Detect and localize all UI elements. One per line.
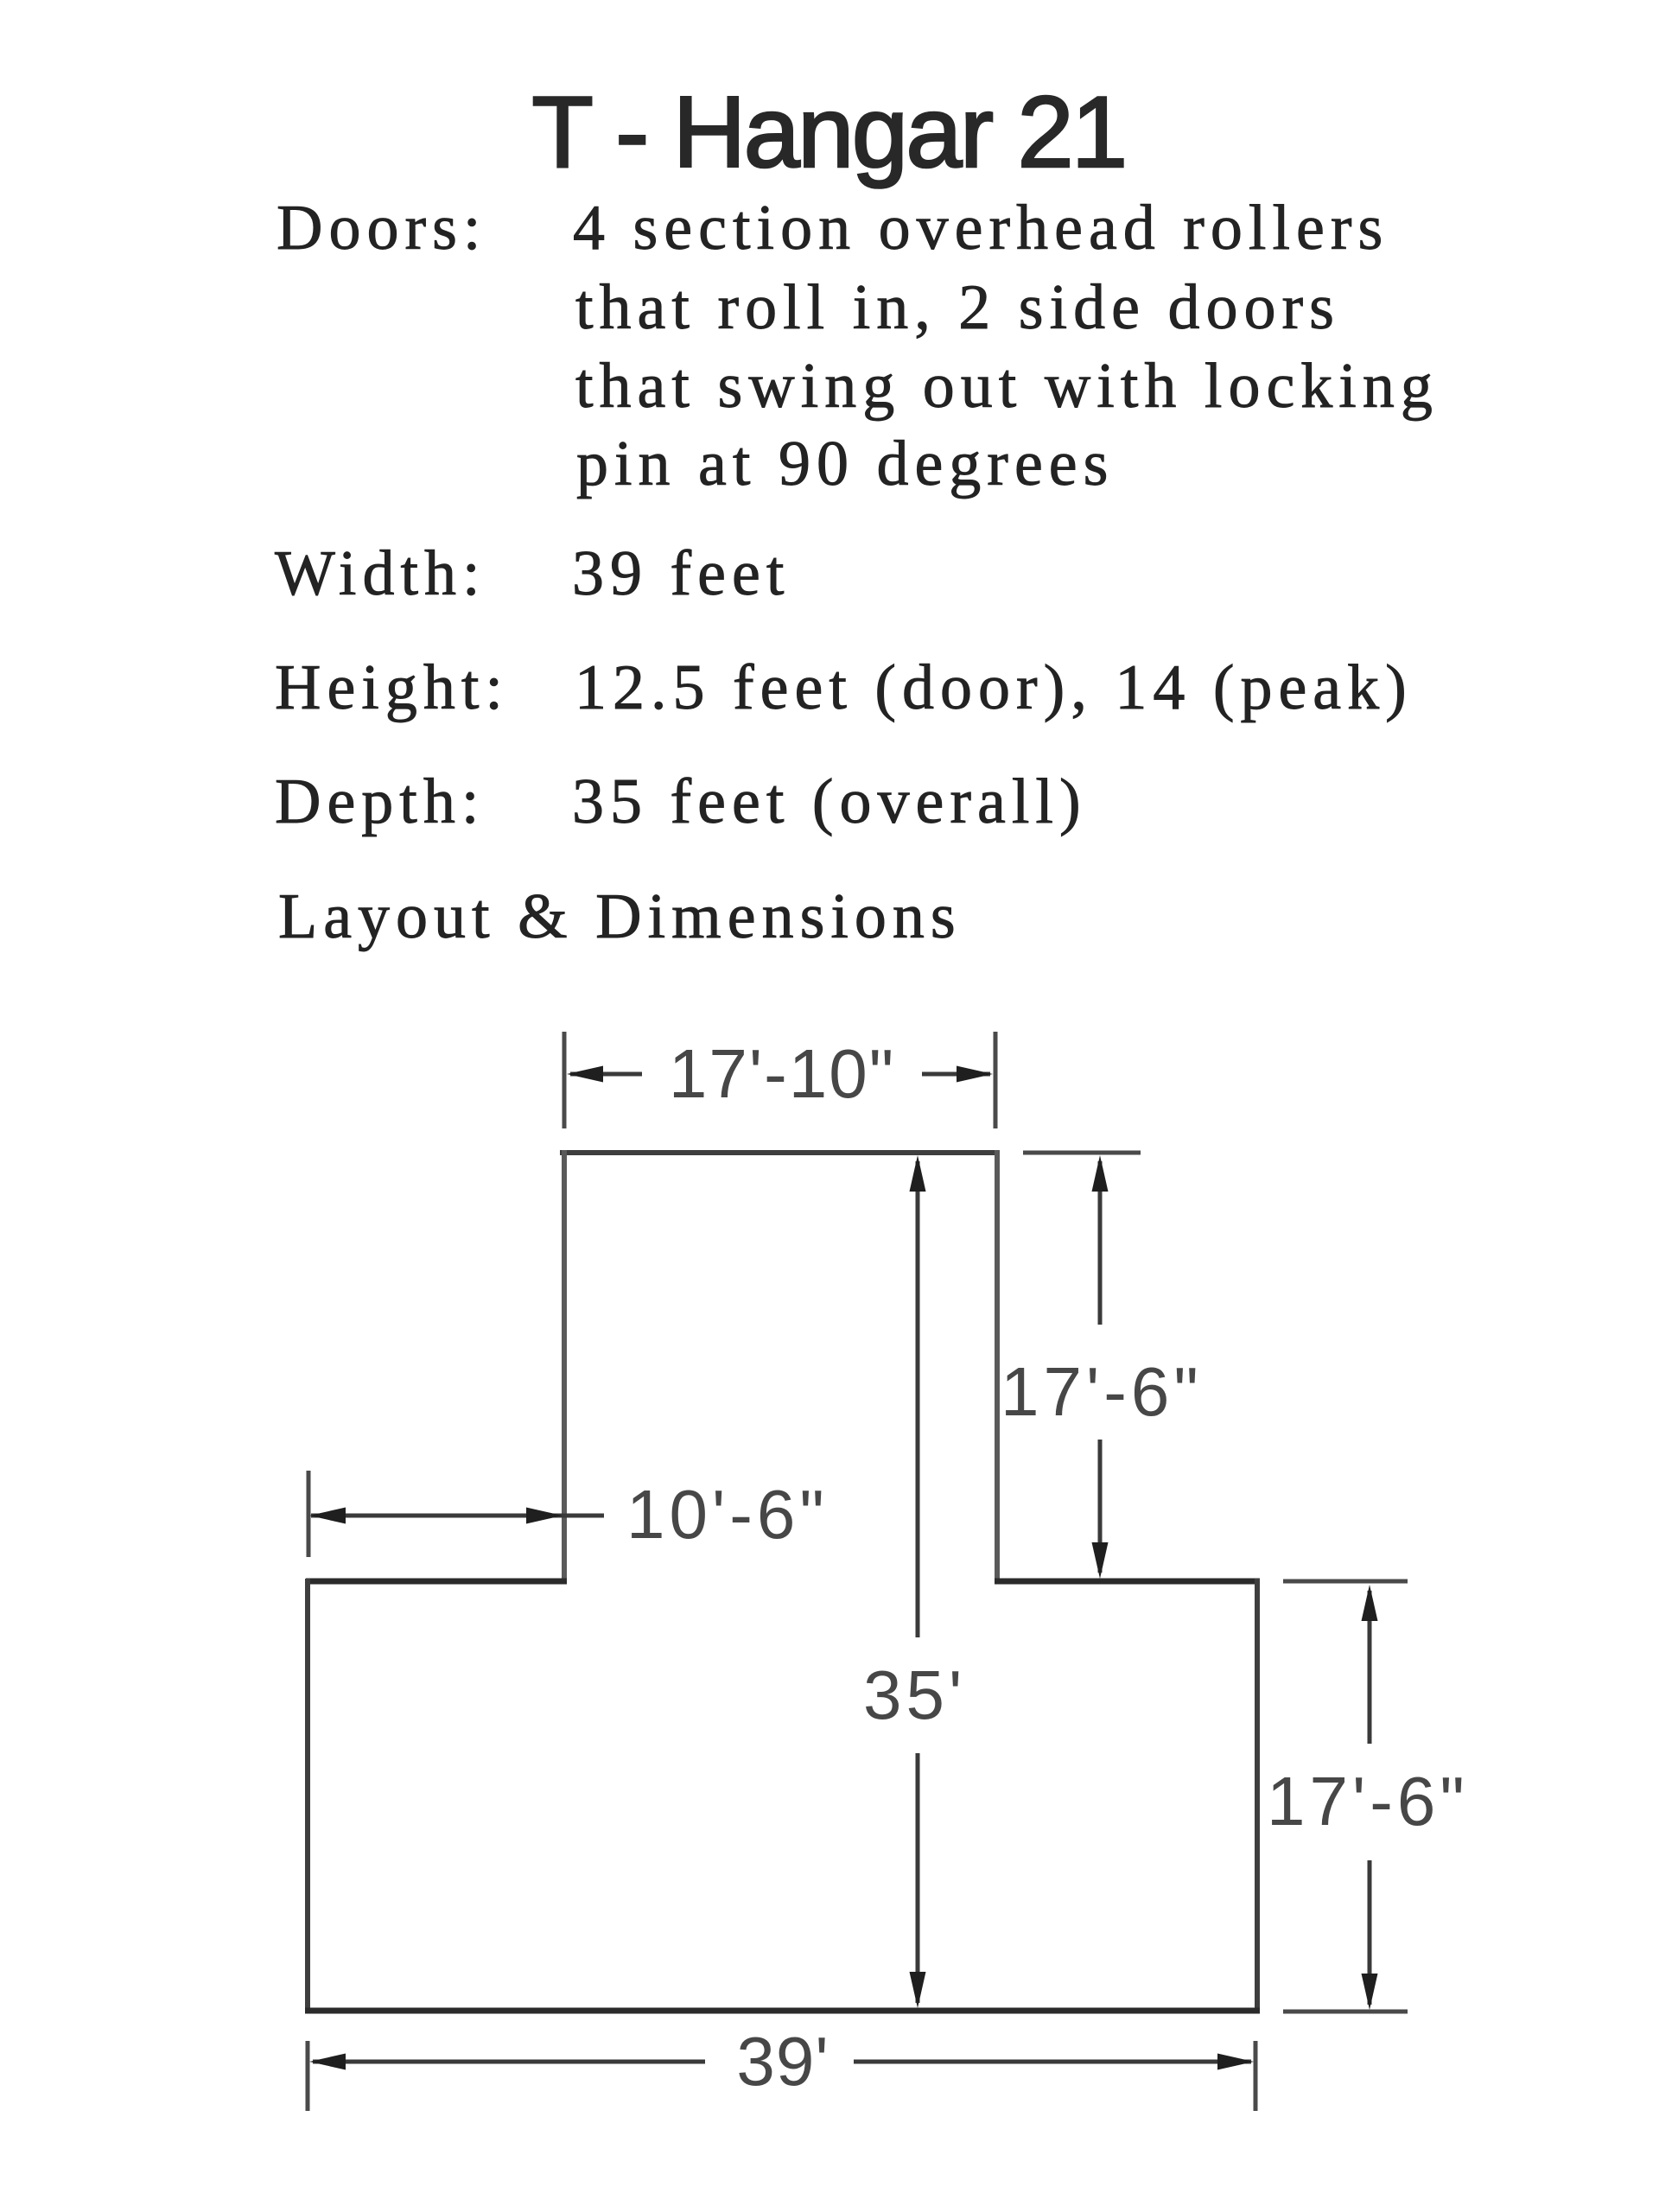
svg-text:Doors:: Doors: [276,193,486,264]
svg-text:17'-6": 17'-6" [1267,1763,1469,1840]
svg-text:39 feet: 39 feet [572,538,790,609]
svg-text:Depth:: Depth: [275,766,485,837]
svg-text:that swing out with locking: that swing out with locking [575,351,1439,422]
svg-text:39': 39' [736,2023,829,2100]
svg-text:Height:: Height: [275,652,509,723]
svg-text:that roll in, 2 side doors: that roll in, 2 side doors [575,272,1340,343]
svg-text:17'-6": 17'-6" [1001,1353,1203,1430]
svg-text:Layout & Dimensions: Layout & Dimensions [278,881,962,952]
svg-text:T - Hangar 21: T - Hangar 21 [531,75,1125,188]
svg-text:Width:: Width: [275,538,486,609]
svg-text:35': 35' [863,1656,966,1733]
svg-text:12.5 feet (door), 14 (peak): 12.5 feet (door), 14 (peak) [575,652,1413,723]
svg-text:4 section overhead rollers: 4 section overhead rollers [573,193,1389,264]
svg-text:10'-6": 10'-6" [626,1476,829,1553]
svg-text:35 feet (overall): 35 feet (overall) [572,766,1087,837]
svg-text:pin at 90 degrees: pin at 90 degrees [576,429,1114,499]
svg-text:17'-10": 17'-10" [669,1035,895,1112]
